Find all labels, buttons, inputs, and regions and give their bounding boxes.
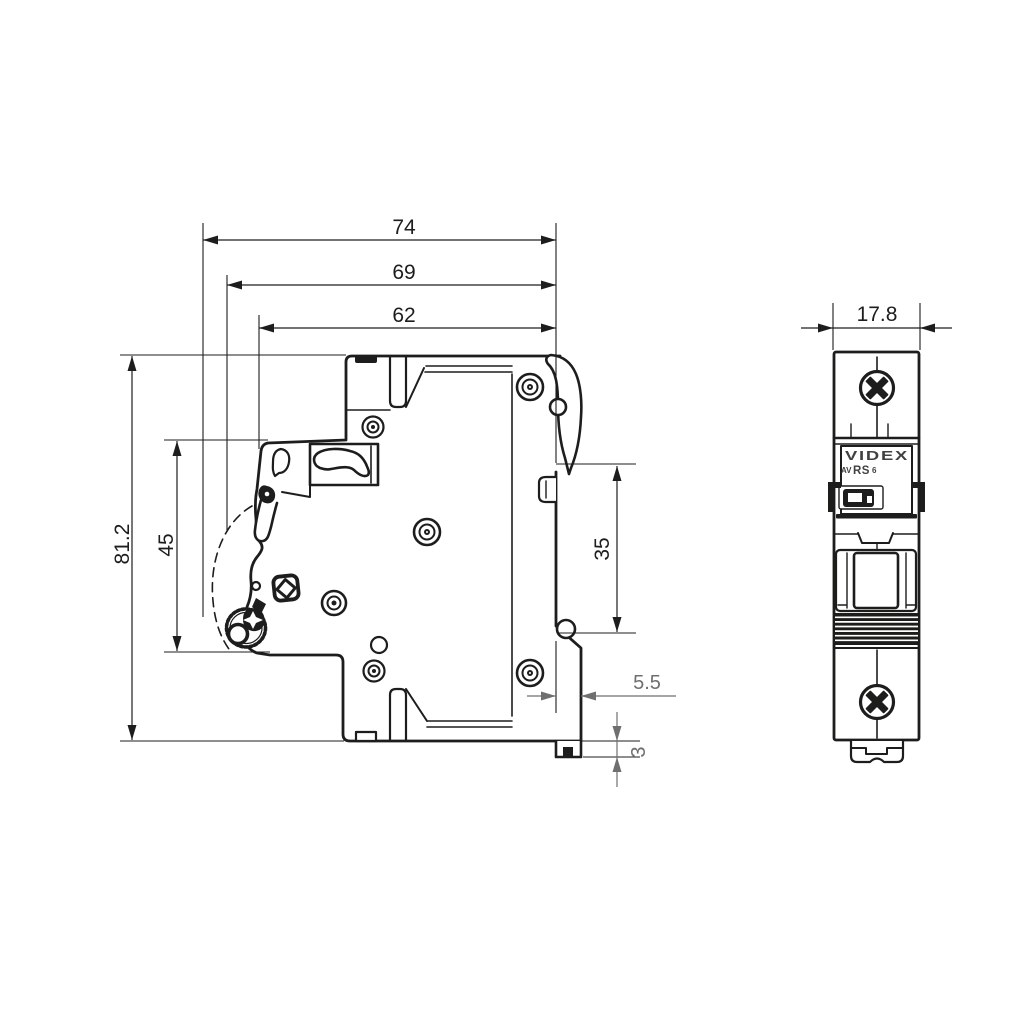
din-top-hook: [546, 355, 581, 474]
bottom-chamfer: [406, 689, 427, 721]
edge-pin-hole: [252, 582, 260, 590]
dim-label-69: 69: [392, 261, 415, 284]
top-vent-lines: [425, 366, 512, 372]
dimension-annotations: 74 69 62 81.2 45: [111, 216, 952, 787]
dim-label-81-2: 81.2: [111, 524, 134, 565]
dim-width: 17.8: [801, 303, 952, 333]
model-series: RS: [853, 465, 870, 477]
teardrop-hole: [273, 449, 289, 476]
trip-lever: [255, 500, 277, 541]
dim-depth-front: 62: [259, 304, 556, 333]
bezel-lower-edge: [282, 485, 310, 497]
gear-bush: [229, 625, 248, 644]
dim-label-5-5: 5.5: [633, 672, 661, 694]
dim-depth-body: 69: [227, 261, 556, 290]
shaft-square: [273, 575, 299, 601]
rivet-top-middle: [363, 417, 384, 438]
bottom-notch: [356, 732, 376, 741]
dim-label-17-8: 17.8: [857, 303, 898, 326]
dim-label-74: 74: [392, 216, 416, 239]
grip-ribs: [835, 613, 918, 645]
rivet-bottom-right: [517, 660, 543, 686]
hole-top-right: [550, 399, 566, 415]
dim-clip-offset: 5.5: [527, 672, 676, 701]
breaker-front-view: VIDEX AV RS 6: [828, 352, 925, 762]
breaker-dimension-drawing: VIDEX AV RS 6: [0, 0, 1024, 1024]
hole-bottom-middle: [371, 637, 387, 653]
bottom-slot: [390, 689, 406, 740]
rail-catch-tooth: [539, 477, 556, 502]
dim-label-45: 45: [155, 533, 178, 556]
clip-spring-circle: [557, 620, 575, 638]
label-plate-bottom-bar: [836, 514, 917, 519]
dim-height-total: 81.2: [111, 356, 137, 740]
technical-drawing-page: VIDEX AV RS 6: [0, 0, 1024, 1024]
bottom-vent-lines: [427, 721, 512, 727]
front-din-clip: [851, 741, 903, 762]
top-notch: [355, 355, 377, 363]
dim-label-3: 3: [628, 746, 650, 757]
dim-clip-tab: 3: [613, 712, 651, 787]
model-prefix: AV: [841, 466, 852, 475]
brand-logo: VIDEX: [845, 449, 909, 463]
rivet-mech: [322, 591, 346, 615]
indicator-tick: [867, 496, 872, 503]
dim-label-62: 62: [392, 304, 415, 327]
model-rating: 6: [872, 466, 877, 475]
dim-depth-total: 74: [203, 216, 556, 245]
side-rivets: [322, 374, 575, 686]
lever-pivot-hole: [265, 492, 270, 497]
rivet-center: [414, 519, 440, 545]
top-slot: [390, 356, 406, 407]
breaker-side-view: [212, 355, 581, 757]
dim-label-35: 35: [591, 537, 614, 560]
rivet-bottom-middle: [364, 661, 385, 682]
rivet-top-right: [517, 374, 543, 400]
indicator-window: [848, 493, 862, 502]
din-bottom-tab-step: [563, 747, 573, 757]
dim-height-front: 45: [155, 441, 182, 651]
top-chamfer: [406, 368, 424, 407]
dim-din-recess: 35: [591, 466, 622, 632]
